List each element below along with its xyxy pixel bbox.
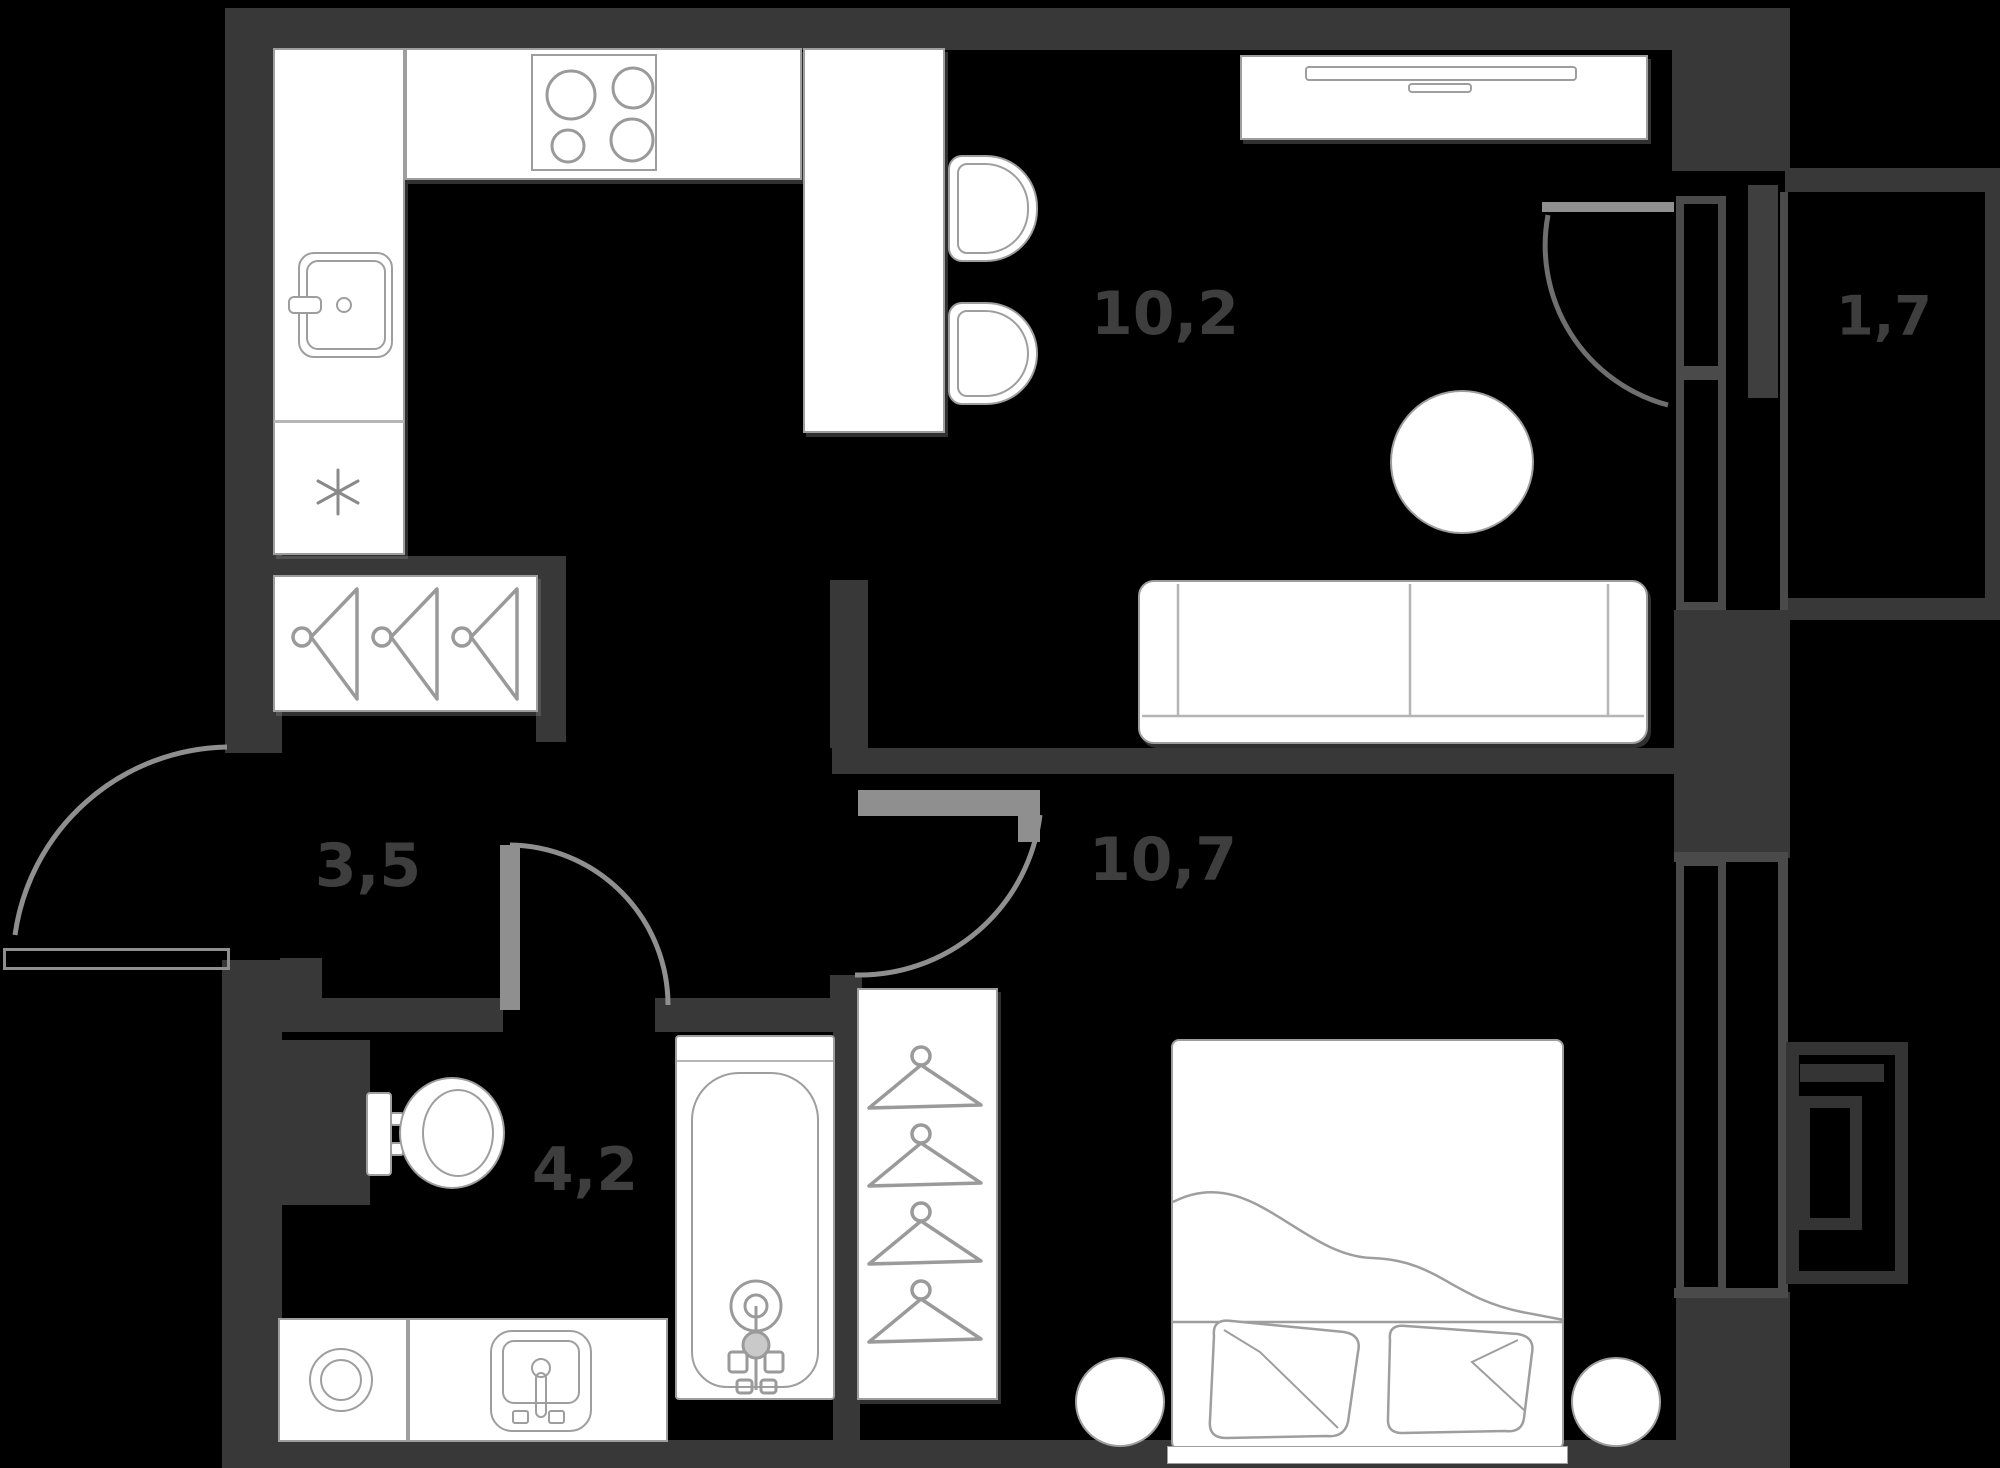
toilet-seat (422, 1089, 494, 1177)
bathtub-edge-line (677, 1060, 833, 1062)
wall-balcony-right (1985, 168, 2000, 620)
bathroom-door-leaf (500, 845, 520, 1010)
double-bed (1171, 1039, 1564, 1450)
bedroom-window-sill-bottom (1674, 1288, 1788, 1298)
living-room-window-tick (1676, 366, 1726, 380)
wall-balcony-top (1785, 168, 2000, 192)
bedroom-window (1676, 858, 1726, 1295)
wall-living-bedroom-divider (832, 748, 1676, 774)
wall-entry-corner (280, 958, 322, 1032)
wall-hallway-right (830, 580, 868, 748)
kitchen-sink-drain (336, 297, 352, 313)
wall-between-windows (1674, 610, 1790, 858)
wall-left-lower (222, 960, 282, 1468)
wall-top (228, 8, 1672, 50)
wall-top-right-corner (1672, 8, 1790, 171)
living-room-window (1676, 196, 1726, 610)
balcony-door-jamb (1542, 202, 1674, 212)
bar-peninsula (803, 48, 945, 433)
nightstand (1075, 1357, 1165, 1447)
entry-door-arc (15, 747, 227, 935)
stove (531, 54, 657, 171)
room-label-kitchen-living: 10,2 (1091, 279, 1239, 349)
entry-door-leaf (3, 948, 230, 970)
kitchen-sink-tap (288, 296, 322, 314)
bedroom-door-arc (855, 815, 1040, 975)
bed-headboard (1167, 1446, 1568, 1464)
bedroom-door-jamb (1018, 816, 1040, 842)
balcony-glazing-line (1780, 192, 1788, 610)
sofa (1138, 580, 1648, 744)
washer-drum-inner (320, 1359, 362, 1401)
tv (1305, 66, 1577, 81)
room-label-bedroom: 10,7 (1089, 825, 1237, 895)
bathtub-basin (691, 1072, 819, 1388)
bathroom-sink-handle (512, 1410, 529, 1424)
wall-bathroom-top-right (655, 998, 835, 1032)
balcony-door-leaf (1748, 185, 1778, 398)
room-label-balcony: 1,7 (1836, 285, 1932, 348)
air-conditioner-inner (1798, 1096, 1862, 1230)
wardrobe-with-hangers (857, 988, 998, 1400)
wall-balcony-bottom (1785, 598, 2000, 620)
balcony-door-arc (1545, 215, 1668, 405)
wall-kitchen-stub (536, 580, 566, 742)
bedroom-door-leaf (858, 790, 1040, 816)
round-table (1390, 390, 1534, 534)
wall-right-bottom-block (1676, 1292, 1790, 1468)
coat-rack (273, 575, 538, 712)
nightstand (1571, 1357, 1661, 1447)
wall-bathroom-top-left (225, 998, 503, 1032)
bathroom-sink-handle (548, 1410, 565, 1424)
room-label-bathroom: 4,2 (532, 1135, 638, 1205)
bathroom-sink-faucet-stem (535, 1372, 547, 1418)
counter-divider-line (274, 420, 404, 423)
room-label-hallway: 3,5 (315, 831, 421, 901)
tv-stand (1408, 83, 1472, 93)
air-conditioner-bar (1800, 1064, 1884, 1082)
toilet-tank (366, 1092, 392, 1176)
floor-plan: 10,2 3,5 4,2 10,7 1,7 (0, 0, 2000, 1468)
wall-bathroom-right (833, 1000, 860, 1440)
wall-duct-block (280, 1040, 370, 1205)
bathroom-door-arc (510, 845, 668, 1005)
